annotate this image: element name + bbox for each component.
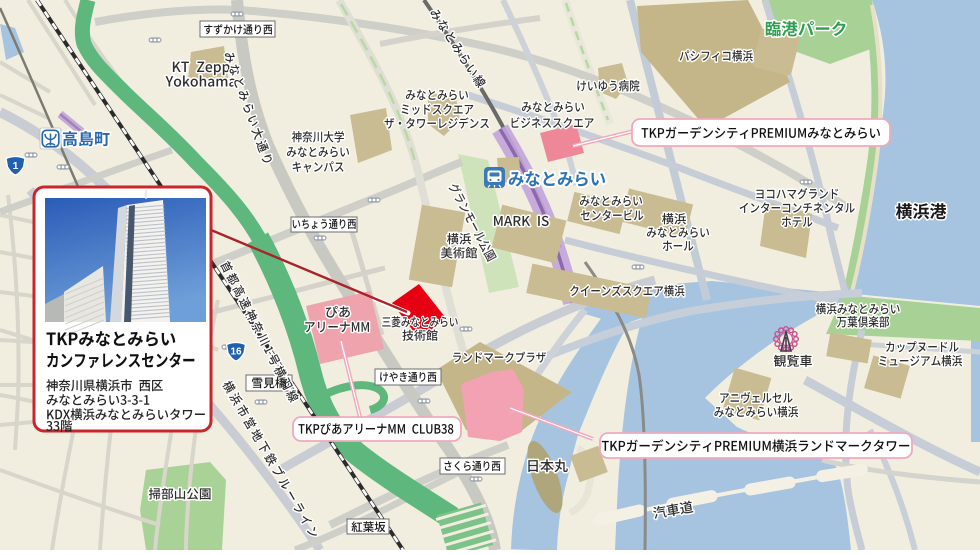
svg-text:1: 1: [13, 160, 19, 172]
svg-text:16: 16: [230, 347, 242, 358]
